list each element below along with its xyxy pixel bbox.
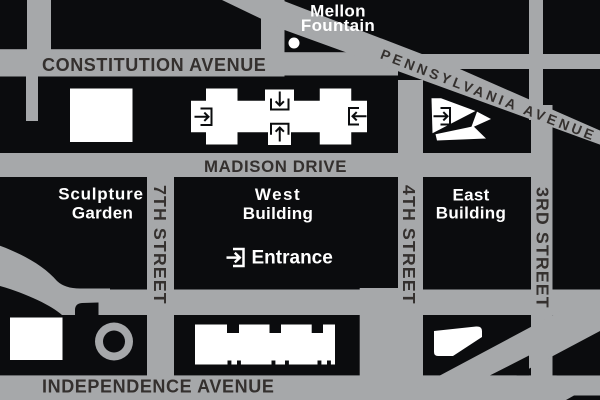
svg-text:7TH STREET: 7TH STREET	[150, 185, 170, 305]
svg-text:4TH STREET: 4TH STREET	[399, 185, 419, 305]
svg-text:3RD STREET: 3RD STREET	[533, 187, 553, 309]
svg-text:Entrance: Entrance	[252, 248, 333, 269]
svg-text:Building: Building	[436, 204, 506, 223]
svg-text:East: East	[452, 186, 489, 205]
svg-text:CONSTITUTION AVENUE: CONSTITUTION AVENUE	[42, 55, 266, 75]
svg-text:Sculpture: Sculpture	[58, 185, 144, 204]
svg-text:Fountain: Fountain	[301, 16, 375, 35]
svg-text:West: West	[255, 185, 301, 204]
svg-text:MADISON DRIVE: MADISON DRIVE	[204, 157, 347, 176]
svg-text:INDEPENDENCE AVENUE: INDEPENDENCE AVENUE	[42, 377, 274, 397]
svg-text:Building: Building	[243, 204, 313, 223]
svg-text:Garden: Garden	[72, 204, 133, 223]
